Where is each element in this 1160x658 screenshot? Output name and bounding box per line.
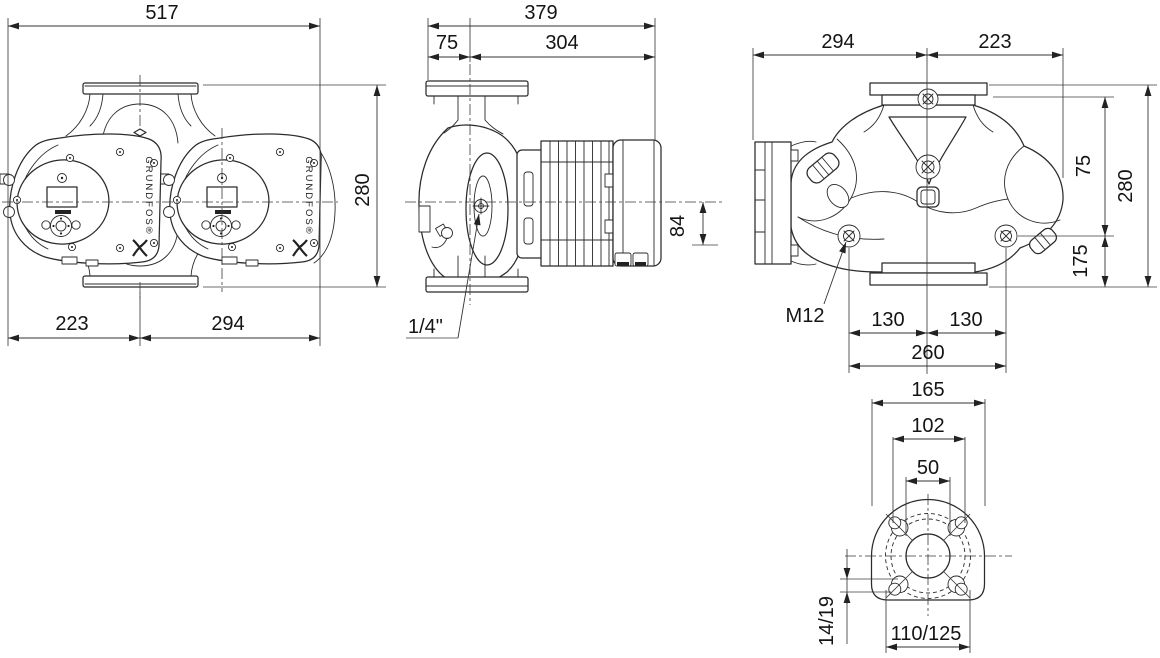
dim-side-back-length: 304 [545,32,578,54]
dim-bolt-total-spacing: 260 [911,342,944,364]
dim-front-total-width: 517 [145,2,178,24]
flange-bolt-top [918,89,938,109]
dim-front-left-width: 223 [55,313,88,335]
bolt-size-label: M12 [786,305,825,327]
dim-side-box-height: 84 [667,215,689,237]
dim-front-height: 280 [352,173,374,206]
dim-back-left-width: 294 [821,31,854,53]
flange-drawing [845,494,1012,616]
pump-front-drawing: GRUNDFOS® GRUNDFOS® [0,75,338,300]
housing-bolt-right [995,225,1017,247]
dim-back-total-height: 280 [1115,169,1137,202]
vent-size-label: 1/4" [408,316,443,338]
dim-flange-outer: 165 [911,379,944,401]
back-view: 294 223 75 175 280 M12 130 130 260 [753,31,1157,374]
dim-back-lower-height: 175 [1070,244,1092,277]
pump-head-right [160,134,321,266]
dim-side-front-length: 75 [436,32,458,54]
pump-head-left [0,134,161,266]
bracket-bolt-center [916,155,940,179]
dim-back-upper-height: 75 [1073,155,1095,177]
pump-side-drawing [405,64,722,305]
dim-flange-bore: 50 [917,457,939,479]
dim-back-right-width: 223 [978,31,1011,53]
brand-label-right: GRUNDFOS® [303,156,314,235]
flow-marker [134,129,146,136]
dim-flange-hole-span: 102 [911,415,944,437]
side-view: 379 75 304 84 1/4" [405,2,722,338]
pump-back-drawing [755,83,1063,285]
dim-flange-hole-diameter: 14/19 [816,596,838,646]
dim-side-total-length: 379 [524,2,557,24]
flange-view: 165 102 50 14/19 110/125 [816,379,1012,653]
housing-bolt-left [838,225,860,247]
dimensional-drawing-page: GRUNDFOS® GRUNDFOS® 517 280 223 294 [0,0,1160,658]
pump-dimensional-drawing: GRUNDFOS® GRUNDFOS® 517 280 223 294 [0,0,1160,658]
dim-front-right-width: 294 [211,313,244,335]
brand-label-left: GRUNDFOS® [143,156,154,235]
dim-flange-bolt-circle: 110/125 [891,623,962,645]
front-view: GRUNDFOS® GRUNDFOS® 517 280 223 294 [0,2,386,346]
dim-bolt-right-spacing: 130 [949,309,982,331]
dim-bolt-left-spacing: 130 [871,309,904,331]
